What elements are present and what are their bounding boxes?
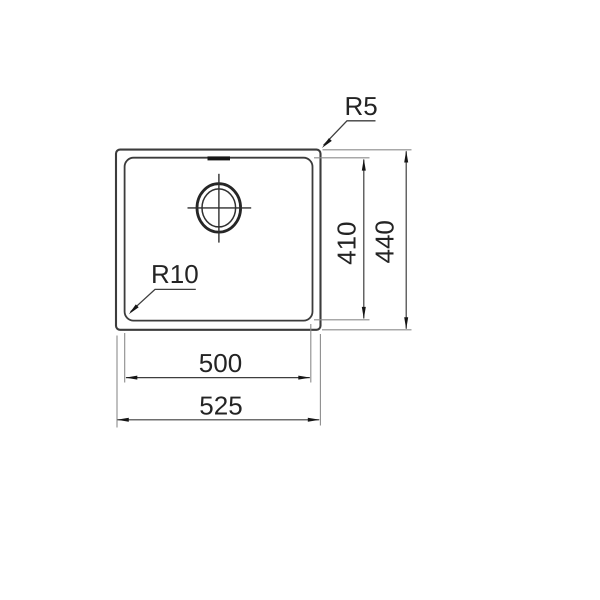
svg-text:500: 500 bbox=[199, 348, 242, 378]
svg-text:R10: R10 bbox=[151, 259, 199, 289]
svg-text:410: 410 bbox=[332, 222, 362, 265]
svg-text:440: 440 bbox=[370, 220, 400, 263]
svg-text:525: 525 bbox=[199, 391, 242, 421]
svg-text:R5: R5 bbox=[345, 91, 378, 121]
